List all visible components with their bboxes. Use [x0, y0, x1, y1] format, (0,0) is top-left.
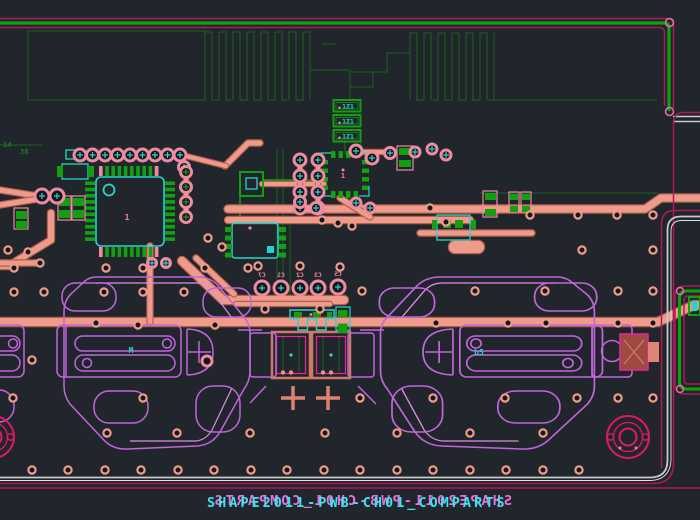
refdes-label: 1 — [341, 172, 345, 180]
qfp-pin — [105, 166, 109, 176]
refdes-label: C5 — [334, 270, 342, 278]
smd-pad — [279, 253, 286, 258]
smd-pad — [279, 236, 286, 241]
soic-dot — [248, 226, 251, 229]
qfp-pin — [130, 247, 134, 257]
via — [321, 429, 328, 436]
via — [261, 305, 268, 312]
qfp-pin — [85, 194, 95, 198]
title-block-text: SHAPE2011-PWB-CH01_COMPARTS SHAPE2011-PW… — [207, 493, 512, 511]
smd-pad — [57, 166, 63, 177]
refdes-label: C7 — [258, 271, 266, 279]
smd-pad — [155, 247, 159, 257]
via — [356, 394, 363, 401]
via — [103, 429, 110, 436]
via — [40, 288, 47, 295]
via — [542, 319, 549, 326]
qfn-pad — [362, 186, 369, 191]
via — [247, 466, 254, 473]
smd-pad — [99, 166, 103, 176]
smd-pad — [279, 244, 286, 249]
qfn-pad — [339, 151, 344, 158]
smd-pad — [225, 227, 232, 232]
refdes-label: 38 — [20, 148, 28, 156]
qfp-pin — [124, 247, 128, 257]
via — [4, 246, 11, 253]
refdes-label: 14 — [3, 141, 11, 149]
qfp-pin — [149, 166, 153, 176]
via — [139, 288, 146, 295]
refdes-label: M — [129, 346, 134, 355]
via — [613, 211, 620, 218]
qfp-pin — [85, 206, 95, 210]
qfp-pin — [111, 166, 115, 176]
via — [501, 394, 508, 401]
connector-dot — [338, 137, 340, 139]
qfn-pad — [339, 191, 344, 198]
via — [246, 429, 253, 436]
via — [471, 287, 478, 294]
via — [64, 466, 71, 473]
via — [92, 319, 99, 326]
smd-pad — [485, 193, 496, 200]
via — [442, 218, 449, 225]
smd-pad — [279, 227, 286, 232]
via — [218, 243, 225, 250]
connector-dot — [338, 107, 340, 109]
via — [504, 319, 511, 326]
via — [466, 466, 473, 473]
qfp-pin — [85, 219, 95, 223]
via — [539, 466, 546, 473]
smd-pad — [225, 253, 232, 258]
via — [614, 319, 621, 326]
qfp-pin — [85, 225, 95, 229]
smd-pad — [88, 166, 94, 177]
smd-pad — [471, 220, 476, 229]
qfp-pin — [142, 166, 146, 176]
qfp-pin — [165, 194, 175, 198]
via — [573, 394, 580, 401]
qfn-pad — [362, 169, 369, 174]
qfn-pad — [331, 191, 336, 198]
via — [318, 216, 325, 223]
via — [296, 262, 303, 269]
via — [9, 394, 16, 401]
connector-dot — [338, 122, 340, 124]
connector-label: 1Z1 — [342, 132, 354, 140]
qfp-pin — [85, 188, 95, 192]
soic-inner-mark — [267, 246, 274, 253]
refdes-label: b5 — [474, 348, 484, 357]
via — [649, 394, 656, 401]
via — [578, 246, 585, 253]
bottom-text-front: SHAPE2011-PWB-CH01_COMPARTS — [207, 495, 507, 511]
smd-pad — [59, 210, 70, 218]
via — [36, 259, 43, 266]
smd-pad — [510, 194, 518, 200]
qfp-pin — [165, 200, 175, 204]
smd-pad — [485, 209, 496, 216]
edge-connector-pad — [692, 301, 698, 311]
via — [137, 466, 144, 473]
smd-pad — [432, 220, 437, 229]
via — [204, 234, 211, 241]
via — [541, 287, 548, 294]
qfp-pin — [85, 237, 95, 241]
refdes-label: C2 — [296, 271, 304, 279]
terminal-tab — [648, 342, 659, 362]
pad — [202, 356, 212, 366]
via — [283, 466, 290, 473]
via — [539, 429, 546, 436]
pcb-canvas[interactable]: 1Z11Z11Z1 — [0, 0, 700, 520]
via — [201, 264, 208, 271]
via — [574, 211, 581, 218]
via — [254, 262, 261, 269]
via — [316, 305, 323, 312]
qfp-pin — [105, 247, 109, 257]
via — [649, 246, 656, 253]
smd-pad — [73, 210, 84, 218]
via — [649, 287, 656, 294]
via — [526, 211, 533, 218]
qfp-pin — [165, 225, 175, 229]
via — [429, 394, 436, 401]
via — [429, 466, 436, 473]
via — [649, 319, 656, 326]
qfp-pin — [124, 166, 128, 176]
qfp-pin — [149, 247, 153, 257]
qfp-pin — [118, 166, 122, 176]
via — [393, 429, 400, 436]
refdes-label: C1 — [277, 271, 285, 279]
qfp-pin — [142, 247, 146, 257]
smd-pad — [522, 194, 530, 200]
smd-pad — [16, 211, 27, 219]
via — [100, 288, 107, 295]
via — [10, 288, 17, 295]
via — [358, 287, 365, 294]
smd-pad — [99, 247, 103, 257]
qfp-pin — [85, 182, 95, 186]
via — [334, 219, 341, 226]
smd-pad — [16, 221, 27, 229]
via — [432, 319, 439, 326]
qfn-pad — [346, 191, 351, 198]
via — [134, 321, 141, 328]
qfp-pin — [165, 182, 175, 186]
via — [649, 211, 656, 218]
via — [466, 429, 473, 436]
qfp-pin — [165, 213, 175, 217]
via — [139, 264, 146, 271]
via — [28, 356, 35, 363]
smd-pad — [455, 220, 463, 228]
via — [101, 466, 108, 473]
via — [173, 429, 180, 436]
smd-pad — [73, 198, 84, 206]
qfp-pin — [111, 247, 115, 257]
via — [356, 466, 363, 473]
via — [102, 264, 109, 271]
qfp-pin — [165, 219, 175, 223]
smd-pad — [399, 160, 411, 167]
via — [320, 466, 327, 473]
via — [614, 287, 621, 294]
via — [10, 264, 17, 271]
smd-pad — [510, 206, 518, 212]
qfp-pin — [165, 237, 175, 241]
via — [502, 466, 509, 473]
via — [244, 264, 251, 271]
connector-label: 1Z1 — [342, 102, 354, 110]
via — [24, 248, 31, 255]
qfn-pad — [331, 151, 336, 158]
qfp-pin — [130, 166, 134, 176]
via — [28, 466, 35, 473]
via — [426, 204, 433, 211]
via — [348, 222, 355, 229]
qfp-pin — [85, 213, 95, 217]
qfp-pin — [165, 206, 175, 210]
qfp-pin — [165, 188, 175, 192]
qfp-pin — [85, 200, 95, 204]
via — [210, 466, 217, 473]
via — [180, 288, 187, 295]
qfp-pin — [136, 247, 140, 257]
via — [139, 394, 146, 401]
refdes-label: 1 — [125, 213, 130, 222]
via — [174, 466, 181, 473]
qfn-pad — [362, 177, 369, 182]
qfp-pin — [136, 166, 140, 176]
via — [211, 321, 218, 328]
refdes-label: C3 — [314, 271, 322, 279]
via — [614, 394, 621, 401]
smd-pad — [225, 236, 232, 241]
qfp-pin — [165, 231, 175, 235]
qfp-pin — [85, 231, 95, 235]
connector-label: 1Z1 — [342, 117, 354, 125]
qfp-pin — [118, 247, 122, 257]
smd-pad — [155, 166, 159, 176]
via — [575, 466, 582, 473]
via — [393, 466, 400, 473]
